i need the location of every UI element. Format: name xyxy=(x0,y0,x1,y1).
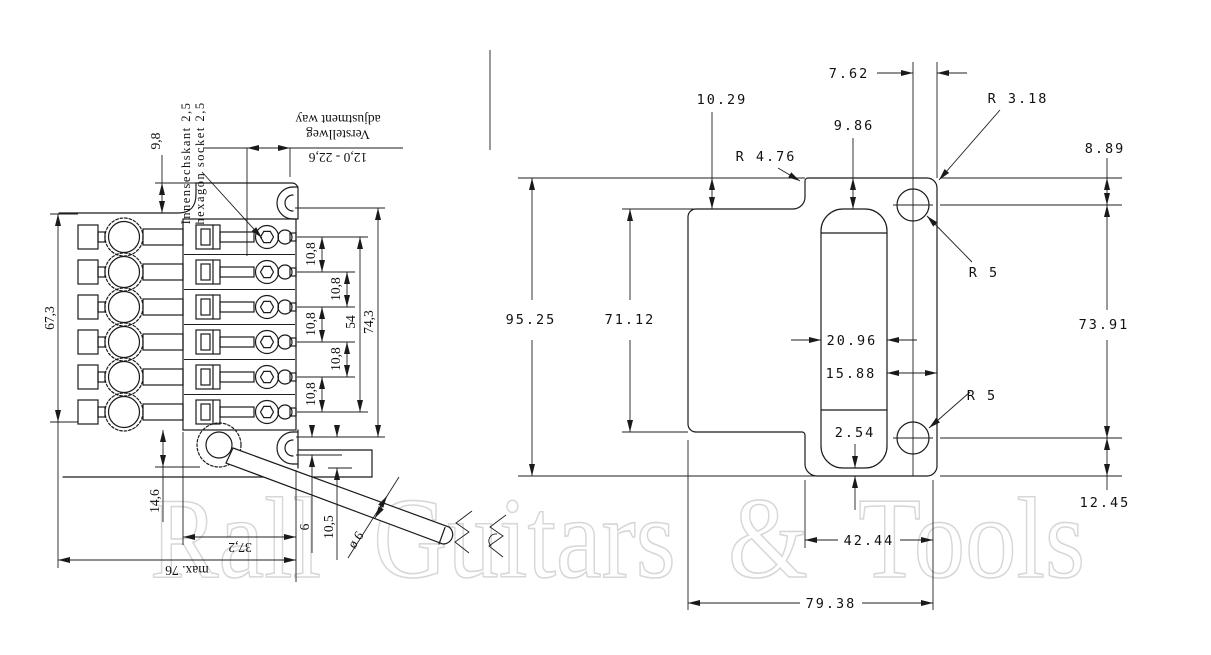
template-outline xyxy=(688,178,937,476)
dim-adjustment-range: 12,0 - 22,6 xyxy=(309,150,368,165)
dim-string-spacing: 10,8 xyxy=(328,277,343,301)
drawing-canvas: Rall Guitars & Tools xyxy=(0,0,1211,655)
dim-overall-height: 95.25 xyxy=(506,312,557,328)
dim-base-to-arm: 14,6 xyxy=(147,489,162,513)
dim-string-spacing: 10,8 xyxy=(328,347,343,371)
dim-overall-height: 67,3 xyxy=(42,306,57,330)
dim-slot-to-edge: 15.88 xyxy=(826,366,877,382)
dim-stud-span: 74,3 xyxy=(361,310,376,334)
saddle-row xyxy=(78,393,296,431)
dim-radius-hole-bottom: R 5 xyxy=(967,388,997,404)
dim-string-spread: 54 xyxy=(343,315,358,329)
bottom-stud-cutout xyxy=(277,430,298,468)
dim-string-spacing: 10,8 xyxy=(303,382,318,406)
dim-wing-height: 71.12 xyxy=(605,312,656,328)
dim-string-spacing: 10,8 xyxy=(303,312,318,336)
dim-max-depth: max. 76 xyxy=(165,563,209,578)
hex-label-de: Innensechskant 2,5 xyxy=(179,102,193,225)
dim-top-offset: 9,8 xyxy=(148,132,163,149)
saddle-row xyxy=(78,253,296,291)
dim-radius-hole-top: R 5 xyxy=(969,265,999,281)
dim-slot-bottom-offset: 2.54 xyxy=(835,425,876,441)
saddle-row xyxy=(78,358,296,396)
dim-slot-width: 20.96 xyxy=(827,333,878,349)
dim-step-width: 42.44 xyxy=(844,533,895,549)
dim-edge-6: 6 xyxy=(297,523,312,530)
dim-overall-width: 79.38 xyxy=(806,596,857,612)
arm-bracket xyxy=(63,450,372,477)
technical-drawing-page: Rall Guitars & Tools xyxy=(0,0,1211,655)
hex-label-en: hexagon socket 2,5 xyxy=(193,101,207,224)
dim-hole-bottom-offset: 12.45 xyxy=(1080,495,1131,511)
dim-radius-corner: R 3.18 xyxy=(988,91,1049,107)
adjustment-label-de: Verstellweg xyxy=(306,127,370,142)
dim-step-height: 10.29 xyxy=(697,92,748,108)
saddle-row xyxy=(78,288,296,326)
dim-hole-top-offset: 8.89 xyxy=(1085,141,1126,157)
hex-socket-leader xyxy=(202,172,262,238)
dim-hole-spacing: 73.91 xyxy=(1079,317,1130,333)
dim-hole-to-edge: 7.62 xyxy=(829,66,870,82)
dim-plate-width: 37,2 xyxy=(228,540,252,555)
saddle-row xyxy=(78,323,296,361)
adjustment-way-label: Verstellweg adjustment way xyxy=(295,112,380,142)
dim-string-spacing: 10,8 xyxy=(303,242,318,266)
hexagon-socket-label: Innensechskant 2,5 hexagon socket 2,5 xyxy=(179,101,207,224)
watermark-text: Rall Guitars & Tools xyxy=(150,475,1085,603)
top-stud-cutout xyxy=(277,187,298,219)
dim-edge-10-5: 10,5 xyxy=(321,515,336,539)
dim-slot-top-offset: 9.86 xyxy=(834,118,875,134)
adjustment-label-en: adjustment way xyxy=(295,112,380,127)
arm-pivot-bore xyxy=(206,432,232,458)
dim-radius-step: R 4.76 xyxy=(736,149,797,165)
